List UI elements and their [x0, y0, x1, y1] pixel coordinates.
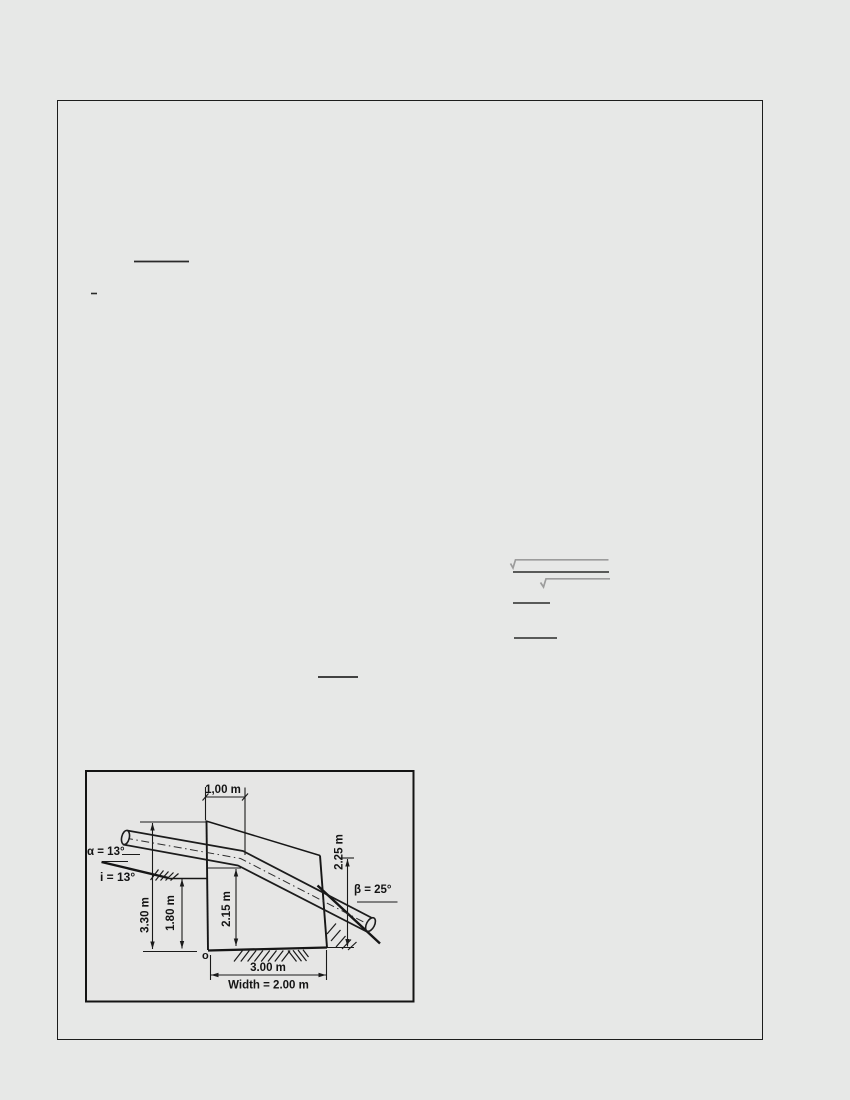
excavation-figure: 1,00 m α = 13° i = 13° 3.30 m 1.80 m 2.1… — [85, 770, 415, 1003]
label-origin: o — [202, 950, 209, 962]
label-depth-right: 2.25 m — [334, 834, 346, 870]
label-top-width: 1,00 m — [205, 784, 241, 796]
label-depth-total: 3.30 m — [140, 897, 152, 933]
sqrt-overbar-2 — [541, 579, 611, 587]
label-bottom-length: 3.00 m — [250, 962, 286, 974]
sqrt-overbar-1 — [511, 560, 609, 568]
label-slope-i: i = 13° — [100, 870, 135, 884]
label-trench-width: Width = 2.00 m — [228, 980, 309, 992]
label-alpha: α = 13° — [87, 846, 125, 858]
label-depth-pipe: 2.15 m — [221, 891, 233, 927]
label-depth-bench: 1.80 m — [165, 895, 177, 931]
label-beta: β = 25° — [354, 884, 392, 896]
